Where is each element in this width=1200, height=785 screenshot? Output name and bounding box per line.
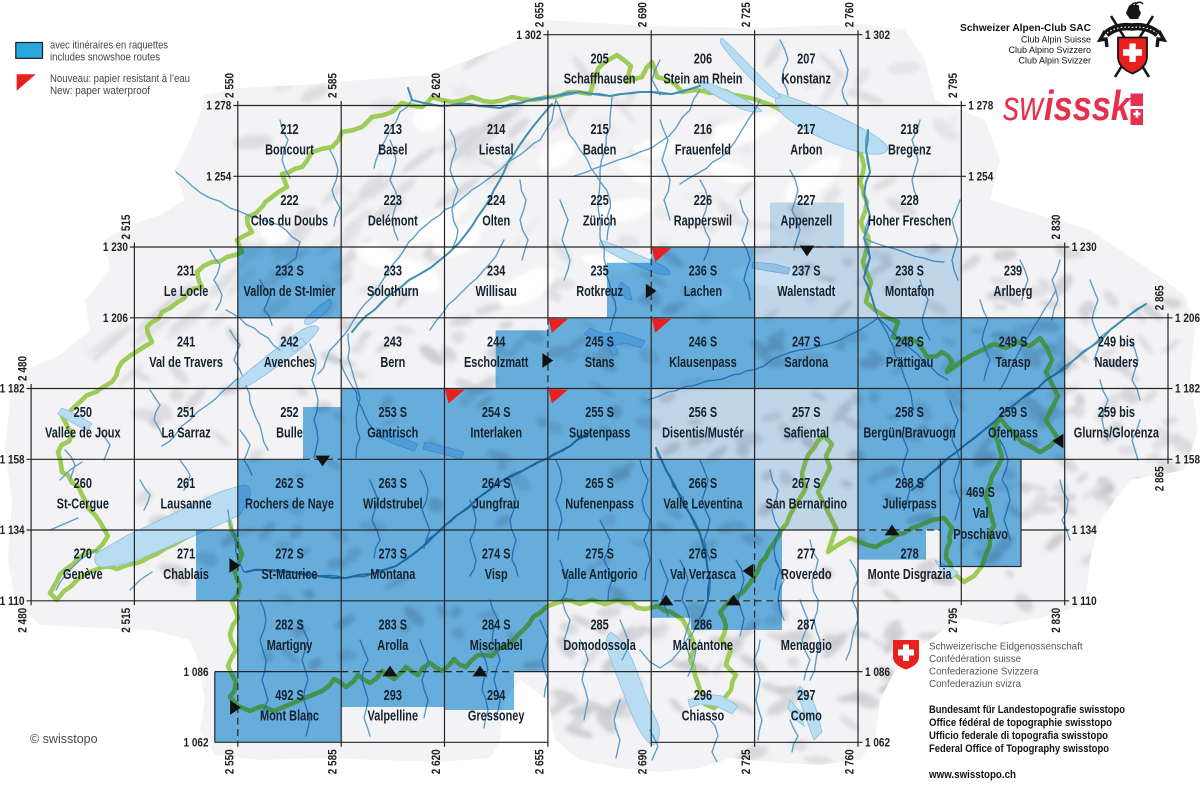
svg-text:260: 260: [74, 475, 92, 492]
svg-text:2 480: 2 480: [16, 608, 30, 633]
svg-text:Schweizer Alpen-Club SAC: Schweizer Alpen-Club SAC: [960, 23, 1092, 34]
svg-text:261: 261: [177, 475, 195, 492]
svg-text:Bergün/Bravuogn: Bergün/Bravuogn: [863, 425, 956, 442]
svg-text:469 S: 469 S: [966, 484, 995, 501]
svg-text:245 S: 245 S: [585, 333, 614, 350]
svg-text:257 S: 257 S: [792, 404, 821, 421]
svg-text:Sustenpass: Sustenpass: [569, 425, 631, 442]
svg-text:232 S: 232 S: [275, 263, 304, 280]
svg-text:2 480: 2 480: [16, 356, 30, 381]
svg-text:1 182: 1 182: [0, 382, 25, 396]
svg-text:217: 217: [797, 121, 815, 138]
svg-text:Olten: Olten: [482, 212, 510, 229]
svg-text:Gantrisch: Gantrisch: [367, 425, 418, 442]
svg-text:255 S: 255 S: [585, 404, 614, 421]
svg-text:284 S: 284 S: [482, 616, 511, 633]
svg-text:249 S: 249 S: [999, 333, 1028, 350]
svg-text:2 725: 2 725: [739, 2, 753, 27]
svg-text:242: 242: [280, 333, 298, 350]
svg-text:1 206: 1 206: [1175, 311, 1200, 325]
svg-text:Bern: Bern: [380, 354, 405, 371]
svg-text:1 254: 1 254: [206, 170, 231, 184]
svg-text:Confederaziun svizra: Confederaziun svizra: [929, 679, 1022, 690]
svg-text:Stans: Stans: [585, 354, 615, 371]
svg-text:223: 223: [384, 192, 402, 209]
svg-text:Vallon de St-Imier: Vallon de St-Imier: [244, 283, 336, 300]
svg-text:La Sarraz: La Sarraz: [161, 425, 210, 442]
svg-text:294: 294: [487, 687, 506, 704]
svg-text:246 S: 246 S: [689, 333, 718, 350]
svg-text:Basel: Basel: [378, 142, 407, 159]
svg-text:252: 252: [280, 404, 298, 421]
svg-text:222: 222: [280, 192, 298, 209]
svg-text:Le Locle: Le Locle: [164, 283, 208, 300]
svg-text:Delémont: Delémont: [368, 212, 418, 229]
svg-text:2 515: 2 515: [119, 608, 133, 633]
svg-text:218: 218: [900, 121, 918, 138]
svg-text:Escholzmatt: Escholzmatt: [464, 354, 529, 371]
svg-text:207: 207: [797, 50, 815, 67]
svg-text:© swisstopo: © swisstopo: [30, 732, 98, 746]
svg-text:Jungfrau: Jungfrau: [473, 495, 520, 512]
svg-text:286: 286: [694, 616, 712, 633]
svg-text:226: 226: [694, 192, 712, 209]
svg-text:Safiental: Safiental: [784, 425, 830, 442]
svg-text:Clos du Doubs: Clos du Doubs: [251, 212, 328, 229]
svg-text:Frauenfeld: Frauenfeld: [675, 142, 731, 159]
svg-text:237 S: 237 S: [792, 263, 821, 280]
svg-text:Boncourt: Boncourt: [265, 142, 314, 159]
svg-text:1 134: 1 134: [0, 523, 25, 537]
svg-text:265 S: 265 S: [585, 475, 614, 492]
svg-text:214: 214: [487, 121, 506, 138]
svg-text:Nauders: Nauders: [1095, 354, 1139, 371]
svg-text:St-Cergue: St-Cergue: [57, 495, 109, 512]
svg-text:1 158: 1 158: [1175, 453, 1200, 467]
svg-text:Nufenenpass: Nufenenpass: [565, 495, 634, 512]
svg-text:Schaffhausen: Schaffhausen: [564, 71, 636, 88]
svg-text:206: 206: [694, 50, 712, 67]
svg-text:Tarasp: Tarasp: [995, 354, 1030, 371]
svg-text:2 725: 2 725: [739, 749, 753, 774]
svg-text:251: 251: [177, 404, 195, 421]
svg-text:254 S: 254 S: [482, 404, 511, 421]
svg-text:Klausenpass: Klausenpass: [669, 354, 737, 371]
svg-text:233: 233: [384, 263, 402, 280]
svg-text:216: 216: [694, 121, 712, 138]
svg-text:Prättigau: Prättigau: [886, 354, 934, 371]
svg-text:1 302: 1 302: [516, 28, 541, 42]
svg-text:2 515: 2 515: [119, 214, 133, 239]
svg-text:Stein am Rhein: Stein am Rhein: [663, 71, 742, 88]
svg-text:Montana: Montana: [370, 566, 415, 583]
svg-text:1 086: 1 086: [865, 665, 890, 679]
svg-text:244: 244: [487, 333, 506, 350]
svg-text:Como: Como: [791, 708, 822, 725]
svg-text:San Bernardino: San Bernardino: [766, 495, 848, 512]
svg-text:Appenzell: Appenzell: [780, 212, 832, 229]
svg-text:Val Verzasca: Val Verzasca: [670, 566, 736, 583]
svg-text:2 865: 2 865: [1153, 466, 1167, 491]
svg-text:212: 212: [280, 121, 298, 138]
svg-text:Valpelline: Valpelline: [368, 708, 419, 725]
svg-text:2 690: 2 690: [636, 749, 650, 774]
svg-text:234: 234: [487, 263, 506, 280]
svg-text:Nouveau: papier resistant à l’: Nouveau: papier resistant à l’eau: [50, 73, 190, 85]
svg-text:Menaggio: Menaggio: [781, 637, 832, 654]
svg-text:Val: Val: [973, 505, 989, 522]
svg-text:1 110: 1 110: [0, 594, 25, 608]
svg-text:includes snowshoe routes: includes snowshoe routes: [50, 52, 160, 64]
svg-text:Visp: Visp: [485, 566, 508, 583]
svg-text:238 S: 238 S: [895, 263, 924, 280]
svg-text:Genève: Genève: [63, 566, 103, 583]
svg-text:492 S: 492 S: [275, 687, 304, 704]
svg-text:Club Alpin Svizzer: Club Alpin Svizzer: [1018, 56, 1091, 66]
svg-text:1 278: 1 278: [206, 99, 231, 113]
svg-text:2 760: 2 760: [843, 749, 857, 774]
svg-text:Club Alpin Suisse: Club Alpin Suisse: [1021, 35, 1091, 45]
svg-text:Vallée de Joux: Vallée de Joux: [45, 425, 121, 442]
svg-text:isssk: isssk: [1044, 82, 1132, 129]
svg-text:Schweizerische Eidgenossenscha: Schweizerische Eidgenossenschaft: [929, 642, 1083, 653]
svg-text:247 S: 247 S: [792, 333, 821, 350]
svg-text:Sardona: Sardona: [784, 354, 828, 371]
svg-text:Val de Travers: Val de Travers: [149, 354, 223, 371]
svg-text:Confédération suisse: Confédération suisse: [929, 654, 1022, 665]
svg-text:Confederazione Svizzera: Confederazione Svizzera: [929, 667, 1039, 678]
svg-text:2 550: 2 550: [222, 749, 236, 774]
svg-text:1 230: 1 230: [1072, 240, 1097, 254]
svg-text:275 S: 275 S: [585, 546, 614, 563]
svg-text:Lachen: Lachen: [684, 283, 722, 300]
svg-text:276 S: 276 S: [689, 546, 718, 563]
svg-text:Liestal: Liestal: [479, 142, 514, 159]
svg-text:2 795: 2 795: [946, 608, 960, 633]
svg-text:Rochers de Naye: Rochers de Naye: [245, 495, 334, 512]
svg-text:282 S: 282 S: [275, 616, 304, 633]
svg-text:Arbon: Arbon: [790, 142, 822, 159]
svg-text:296: 296: [694, 687, 712, 704]
svg-text:Walenstadt: Walenstadt: [777, 283, 835, 300]
svg-text:Konstanz: Konstanz: [782, 71, 831, 88]
svg-text:2 655: 2 655: [532, 749, 546, 774]
svg-text:Malcantone: Malcantone: [673, 637, 733, 654]
svg-text:sw: sw: [1003, 82, 1045, 129]
svg-text:Zürich: Zürich: [583, 212, 617, 229]
svg-text:Office fédéral de topographie: Office fédéral de topographie swisstopo: [929, 717, 1112, 729]
svg-text:Martigny: Martigny: [267, 637, 313, 654]
svg-text:272 S: 272 S: [275, 546, 304, 563]
svg-text:253 S: 253 S: [379, 404, 408, 421]
svg-text:278: 278: [900, 546, 918, 563]
svg-text:Chiasso: Chiasso: [682, 708, 725, 725]
svg-text:285: 285: [590, 616, 608, 633]
svg-text:1 182: 1 182: [1175, 382, 1200, 396]
svg-text:Ufficio federale di topografia: Ufficio federale di topografia swisstopo: [929, 730, 1108, 742]
svg-text:Julierpass: Julierpass: [883, 495, 937, 512]
svg-text:1 062: 1 062: [184, 736, 209, 750]
svg-text:241: 241: [177, 333, 195, 350]
svg-text:236 S: 236 S: [689, 263, 718, 280]
svg-text:avec itinéraires en raquettes: avec itinéraires en raquettes: [50, 40, 168, 52]
svg-text:Lausanne: Lausanne: [161, 495, 212, 512]
svg-text:Valle Antigorio: Valle Antigorio: [561, 566, 637, 583]
svg-text:www.swisstopo.ch: www.swisstopo.ch: [928, 769, 1016, 781]
svg-text:Rotkreuz: Rotkreuz: [576, 283, 623, 300]
svg-text:2 620: 2 620: [429, 749, 443, 774]
svg-text:Monte Disgrazia: Monte Disgrazia: [868, 566, 952, 583]
svg-text:274 S: 274 S: [482, 546, 511, 563]
svg-text:243: 243: [384, 333, 402, 350]
svg-text:Rapperswil: Rapperswil: [674, 212, 732, 229]
svg-text:248 S: 248 S: [895, 333, 924, 350]
svg-text:Baden: Baden: [583, 142, 617, 159]
svg-text:259 bis: 259 bis: [1098, 404, 1135, 421]
svg-text:Mischabel: Mischabel: [470, 637, 523, 654]
svg-text:249 bis: 249 bis: [1098, 333, 1135, 350]
svg-text:Ofenpass: Ofenpass: [988, 425, 1038, 442]
svg-text:1 134: 1 134: [1072, 523, 1097, 537]
svg-text:2 865: 2 865: [1153, 285, 1167, 310]
svg-text:2 760: 2 760: [843, 2, 857, 27]
svg-text:Chablais: Chablais: [163, 566, 209, 583]
svg-text:2 655: 2 655: [532, 2, 546, 27]
svg-text:1 254: 1 254: [968, 170, 993, 184]
svg-text:277: 277: [797, 546, 815, 563]
svg-text:259 S: 259 S: [999, 404, 1028, 421]
svg-text:2 830: 2 830: [1049, 214, 1063, 239]
svg-text:267 S: 267 S: [792, 475, 821, 492]
svg-text:213: 213: [384, 121, 402, 138]
svg-text:1 086: 1 086: [184, 665, 209, 679]
svg-text:2 620: 2 620: [429, 73, 443, 98]
svg-text:1 158: 1 158: [0, 453, 25, 467]
svg-text:2 795: 2 795: [946, 73, 960, 98]
svg-text:1 062: 1 062: [865, 736, 890, 750]
svg-text:205: 205: [590, 50, 608, 67]
svg-text:215: 215: [590, 121, 608, 138]
svg-text:271: 271: [177, 546, 195, 563]
svg-text:2 585: 2 585: [326, 749, 340, 774]
svg-text:Federal Office of Topography s: Federal Office of Topography swisstopo: [929, 743, 1109, 755]
svg-text:225: 225: [590, 192, 608, 209]
svg-text:228: 228: [900, 192, 918, 209]
svg-text:2 690: 2 690: [636, 2, 650, 27]
svg-text:258 S: 258 S: [895, 404, 924, 421]
svg-text:1 110: 1 110: [1072, 594, 1097, 608]
svg-text:Arolla: Arolla: [377, 637, 408, 654]
svg-text:Arlberg: Arlberg: [994, 283, 1033, 300]
svg-text:268 S: 268 S: [895, 475, 924, 492]
svg-text:Poschiavo: Poschiavo: [953, 526, 1008, 543]
svg-text:Avenches: Avenches: [264, 354, 315, 371]
svg-text:Willisau: Willisau: [476, 283, 517, 300]
svg-text:Montafon: Montafon: [885, 283, 934, 300]
svg-text:Wildstrubel: Wildstrubel: [363, 495, 423, 512]
svg-text:263 S: 263 S: [379, 475, 408, 492]
svg-text:1 206: 1 206: [103, 311, 128, 325]
svg-text:Valle Leventina: Valle Leventina: [663, 495, 743, 512]
svg-text:297: 297: [797, 687, 815, 704]
svg-text:270: 270: [74, 546, 92, 563]
svg-text:Solothurn: Solothurn: [367, 283, 419, 300]
svg-text:New: paper waterproof: New: paper waterproof: [50, 85, 151, 97]
svg-text:Bundesamt für Landestopografie: Bundesamt für Landestopografie swisstopo: [929, 704, 1125, 716]
svg-text:2 550: 2 550: [222, 73, 236, 98]
svg-text:250: 250: [74, 404, 92, 421]
svg-text:St-Maurice: St-Maurice: [262, 566, 318, 583]
svg-text:227: 227: [797, 192, 815, 209]
svg-text:Club Alpino Svizzero: Club Alpino Svizzero: [1008, 45, 1091, 55]
svg-text:2 830: 2 830: [1049, 608, 1063, 633]
svg-text:283 S: 283 S: [379, 616, 408, 633]
svg-text:224: 224: [487, 192, 506, 209]
svg-text:231: 231: [177, 263, 195, 280]
svg-text:1 278: 1 278: [968, 99, 993, 113]
svg-text:2 585: 2 585: [326, 73, 340, 98]
svg-text:266 S: 266 S: [689, 475, 718, 492]
svg-text:Mont Blanc: Mont Blanc: [260, 708, 319, 725]
svg-text:Bulle: Bulle: [276, 425, 303, 442]
svg-text:Hoher Freschen: Hoher Freschen: [868, 212, 951, 229]
svg-text:Interlaken: Interlaken: [470, 425, 522, 442]
svg-text:Glurns/Glorenza: Glurns/Glorenza: [1074, 425, 1160, 442]
svg-text:262 S: 262 S: [275, 475, 304, 492]
svg-text:Bregenz: Bregenz: [888, 142, 931, 159]
svg-text:235: 235: [590, 263, 608, 280]
svg-text:Roveredo: Roveredo: [781, 566, 832, 583]
svg-text:293: 293: [384, 687, 402, 704]
svg-text:264 S: 264 S: [482, 475, 511, 492]
svg-text:287: 287: [797, 616, 815, 633]
svg-text:Disentis/Mustér: Disentis/Mustér: [662, 425, 744, 442]
svg-text:1 302: 1 302: [865, 28, 890, 42]
svg-text:273 S: 273 S: [379, 546, 408, 563]
svg-text:1 230: 1 230: [103, 240, 128, 254]
svg-text:Domodossola: Domodossola: [563, 637, 636, 654]
svg-text:256 S: 256 S: [689, 404, 718, 421]
svg-text:239: 239: [1004, 263, 1022, 280]
svg-text:Gressoney: Gressoney: [468, 708, 525, 725]
